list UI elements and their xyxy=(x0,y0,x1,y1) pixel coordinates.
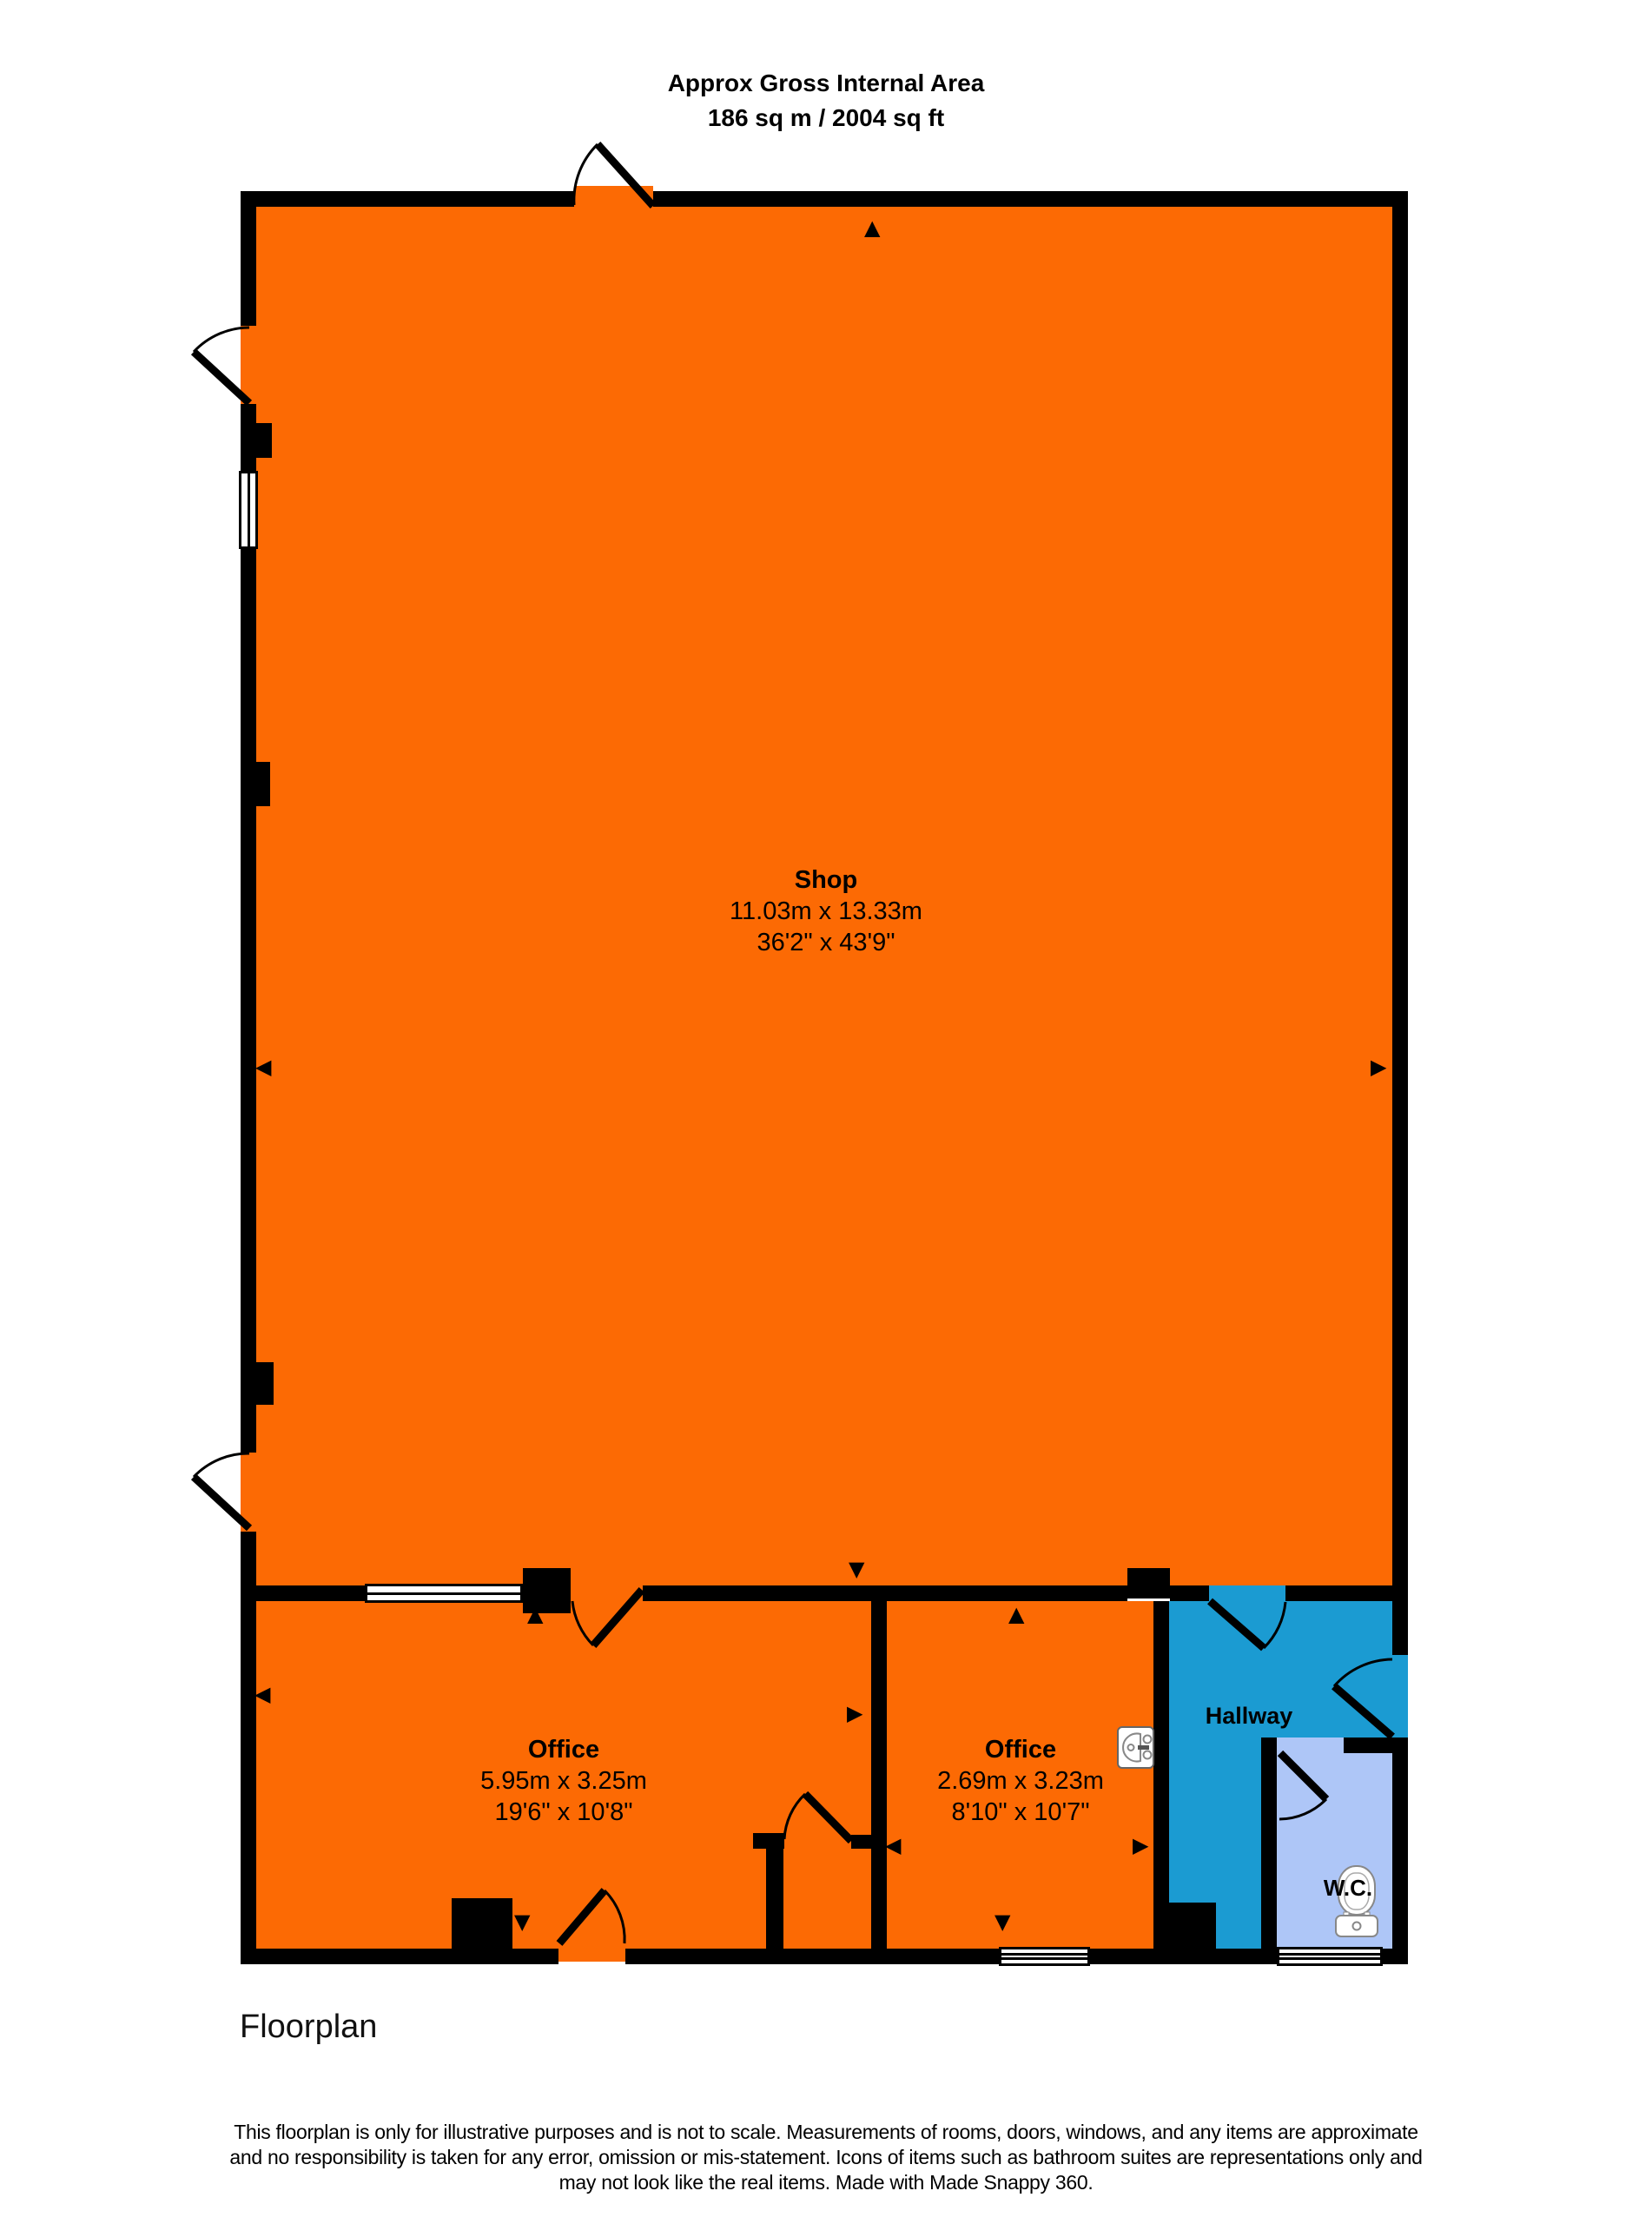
disclaimer-line-2: and no responsibility is taken for any e… xyxy=(0,2145,1652,2170)
pillar-office1-bottom xyxy=(452,1898,512,1949)
door-threshold-shop-hallway xyxy=(1209,1585,1285,1601)
arrow-office2-up: ▲ xyxy=(1008,1604,1024,1625)
wall-hallway-bottom-block xyxy=(1169,1903,1216,1949)
door-threshold-wc xyxy=(1277,1737,1344,1753)
wall-office1-office2-divider xyxy=(871,1601,887,1949)
arrow-office2-down: ▼ xyxy=(995,1911,1010,1932)
arrow-shop-left: ◀ xyxy=(255,1056,271,1077)
shop-label: Shop 11.03m x 13.33m 36'2" x 43'9" xyxy=(730,864,922,958)
shop-dimensions-metric: 11.03m x 13.33m xyxy=(730,896,922,927)
wall-bottom-segment-1 xyxy=(241,1949,558,1964)
wall-bottom-segment-3 xyxy=(1090,1949,1277,1964)
pillar-shop-hallway xyxy=(1127,1568,1170,1598)
door-threshold-shop-top xyxy=(574,186,653,207)
gross-area-value: 186 sq m / 2004 sq ft xyxy=(0,104,1652,132)
gross-area-title: Approx Gross Internal Area xyxy=(0,69,1652,97)
wall-shop-office-segment-1 xyxy=(256,1585,365,1601)
door-threshold-shop-office1 xyxy=(571,1585,643,1601)
wall-left-segment-3 xyxy=(241,549,256,1453)
door-threshold-shop-left-upper xyxy=(241,326,256,404)
floorplan-caption: Floorplan xyxy=(240,2009,377,2046)
wall-wc-top-segment xyxy=(1344,1737,1392,1753)
wall-right-segment-1 xyxy=(1392,191,1408,1655)
disclaimer-line-1: This floorplan is only for illustrative … xyxy=(0,2120,1652,2145)
window-shop-office1 xyxy=(365,1584,523,1603)
wall-left-segment-2 xyxy=(241,404,256,471)
office2-name: Office xyxy=(937,1734,1104,1765)
window-shop-left xyxy=(239,471,258,549)
wc-label: W.C. xyxy=(1324,1875,1372,1902)
arrow-office2-left: ◀ xyxy=(885,1835,901,1856)
wall-office1-closet-jamb xyxy=(851,1835,871,1849)
office2-dimensions-metric: 2.69m x 3.23m xyxy=(937,1765,1104,1797)
window-office2-bottom xyxy=(999,1947,1090,1966)
arrow-shop-right: ▶ xyxy=(1371,1056,1386,1077)
office2-label: Office 2.69m x 3.23m 8'10" x 10'7" xyxy=(937,1734,1104,1828)
arrow-office2-right: ▶ xyxy=(1133,1835,1148,1856)
shop-name: Shop xyxy=(730,864,922,896)
office2-dimensions-imperial: 8'10" x 10'7" xyxy=(937,1797,1104,1828)
window-wc-bottom xyxy=(1277,1947,1383,1966)
shop-dimensions-imperial: 36'2" x 43'9" xyxy=(730,927,922,958)
arrow-office1-right: ▶ xyxy=(847,1703,862,1724)
wall-office1-closet-spur xyxy=(766,1849,783,1949)
wall-shop-hallway-right-segment xyxy=(1285,1585,1392,1601)
wall-shop-office-segment-2 xyxy=(643,1585,1127,1601)
wall-top-right-segment xyxy=(653,191,1408,207)
wall-left-segment-1 xyxy=(241,191,256,326)
arrow-shop-up: ▲ xyxy=(864,217,880,238)
door-threshold-shop-left-lower xyxy=(241,1453,256,1532)
wall-right-segment-2 xyxy=(1392,1737,1408,1964)
door-threshold-office1-exterior xyxy=(558,1949,625,1962)
hallway-label: Hallway xyxy=(1206,1703,1293,1730)
pillar-left-wall-1 xyxy=(256,423,272,458)
arrow-office1-down: ▼ xyxy=(514,1911,530,1932)
wall-top-left-segment xyxy=(241,191,574,207)
wall-office1-closet-cap xyxy=(753,1833,784,1849)
office1-name: Office xyxy=(480,1734,647,1765)
wall-left-segment-4 xyxy=(241,1532,256,1964)
office1-dimensions-imperial: 19'6" x 10'8" xyxy=(480,1797,647,1828)
wall-bottom-segment-2 xyxy=(625,1949,999,1964)
door-threshold-hallway-exterior xyxy=(1392,1655,1408,1737)
wall-office2-hallway-divider xyxy=(1153,1601,1169,1949)
arrow-shop-down: ▼ xyxy=(849,1559,864,1579)
wall-shop-hallway-segment xyxy=(1170,1585,1209,1601)
room-wc xyxy=(1277,1753,1392,1949)
office1-dimensions-metric: 5.95m x 3.25m xyxy=(480,1765,647,1797)
arrow-office1-left: ◀ xyxy=(254,1684,270,1704)
office1-label: Office 5.95m x 3.25m 19'6" x 10'8" xyxy=(480,1734,647,1828)
pillar-left-wall-2 xyxy=(256,762,270,806)
wall-wc-left xyxy=(1261,1737,1277,1949)
pillar-left-wall-3 xyxy=(256,1362,274,1405)
floorplan-page: Approx Gross Internal Area 186 sq m / 20… xyxy=(0,0,1652,2224)
disclaimer-line-3: may not look like the real items. Made w… xyxy=(0,2170,1652,2195)
arrow-office1-up: ▲ xyxy=(527,1604,543,1625)
